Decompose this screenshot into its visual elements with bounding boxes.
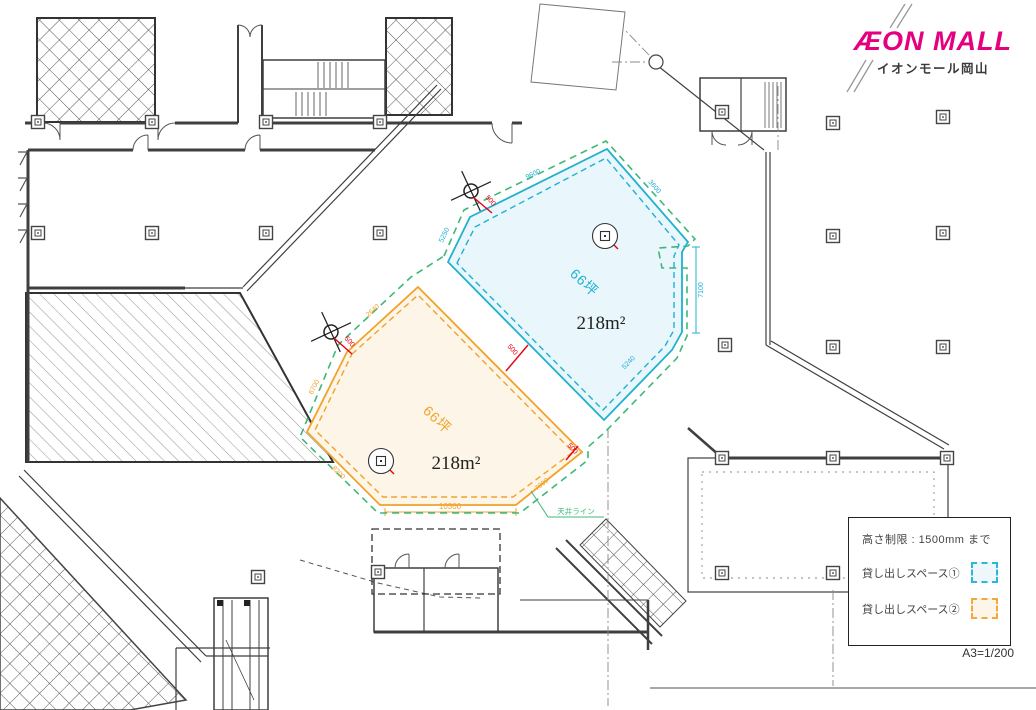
legend-swatch-space2 [971,598,998,619]
legend-label-space2: 貸し出しスペース② [862,601,960,617]
dimension-label: 9600 [525,168,542,181]
floorplan-page: 9600 5250 3600 7100 5240 2640 6700 8200 … [0,0,1036,710]
scale-note: A3=1/200 [936,646,1014,660]
legend-swatch-space1 [971,562,998,583]
dimension-label: 7100 [698,282,705,298]
height-limit-note: 高さ制限 : 1500mm まで [862,531,998,547]
legend-item-space1: 貸し出しスペース① [862,562,998,583]
legend-item-space2: 貸し出しスペース② [862,598,998,619]
brand-subtitle: イオンモール岡山 [842,58,1024,77]
dimension-label: 6700 [308,379,321,396]
dimension-label: 2640 [365,303,381,319]
space2-area-label: 218m² [432,453,481,474]
brand-logo: ÆON MALL [842,28,1024,55]
walkway-dashes [300,560,482,598]
dimension-label: 5250 [438,227,451,244]
logo-block: ÆON MALL イオンモール岡山 [842,28,1024,77]
space1-area-label: 218m² [577,313,626,334]
wall-node-circle [649,55,663,69]
dashed-zone-outline [372,529,500,594]
offset-label: 500 [506,343,519,356]
left-edge-ticks [18,152,27,243]
ceiling-line-label: 天井ライン [557,506,595,516]
legend-label-space1: 貸し出しスペース① [862,565,960,581]
legend-box: 高さ制限 : 1500mm まで 貸し出しスペース① 貸し出しスペース② [848,517,1011,646]
dimension-label: 10300 [439,502,462,511]
